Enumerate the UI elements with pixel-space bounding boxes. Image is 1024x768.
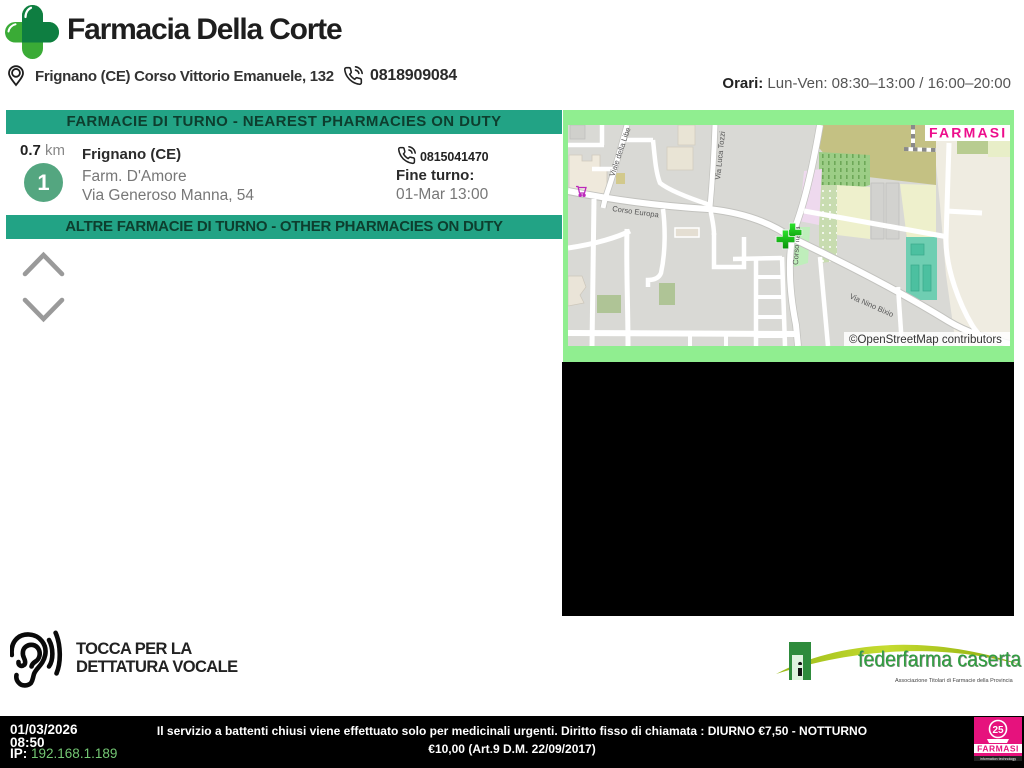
svg-text:Associazione Titolari di Farma: Associazione Titolari di Farmacie della …: [895, 678, 1014, 684]
svg-text:FARMASI: FARMASI: [977, 744, 1019, 754]
svg-text:information technology: information technology: [980, 757, 1016, 761]
svg-text:FARMASI: FARMASI: [929, 125, 1007, 141]
svg-text:federfarma caserta: federfarma caserta: [858, 646, 1021, 671]
svg-text:©OpenStreetMap contributors: ©OpenStreetMap contributors: [849, 334, 1002, 346]
svg-text:25: 25: [992, 725, 1004, 736]
